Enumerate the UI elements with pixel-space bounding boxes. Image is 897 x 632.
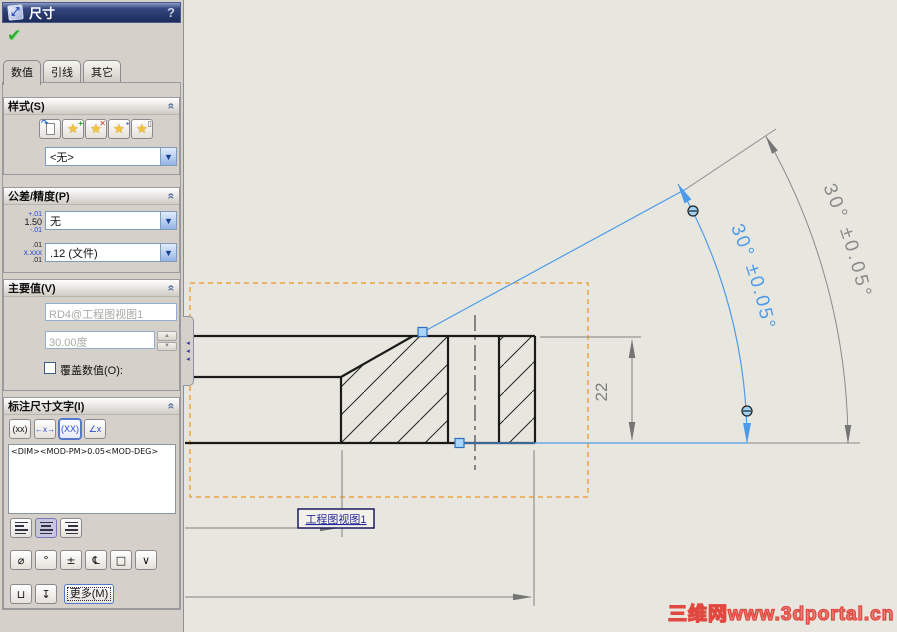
depth-symbol-button[interactable]: ↧ bbox=[35, 584, 57, 604]
tolerance-header-label: 公差/精度(P) bbox=[8, 188, 70, 204]
tab-content: 样式(S) « ↷ ★ + ★ ✕ ★ ▪ bbox=[2, 82, 181, 610]
collapse-triangle-icon: ◂ bbox=[186, 341, 190, 346]
arrow-grip-handle-bottom[interactable] bbox=[742, 406, 752, 416]
override-value-checkbox[interactable] bbox=[44, 362, 56, 374]
square-symbol-button[interactable]: □ bbox=[110, 550, 132, 570]
add-style-button[interactable]: ★ + bbox=[62, 119, 84, 139]
apply-default-style-button[interactable]: ↷ bbox=[39, 119, 61, 139]
plus-icon: + bbox=[78, 119, 83, 128]
collapse-chevron-icon[interactable]: « bbox=[165, 403, 179, 410]
angle-text-button[interactable]: ∠x bbox=[84, 419, 106, 439]
align-left-button[interactable] bbox=[10, 518, 32, 538]
primary-value-section: 主要值(V) « RD4@工程图视图1 30.00度 ▲ ▼ 覆盖数值(O): bbox=[3, 279, 180, 391]
load-style-button[interactable]: ★ ▯ bbox=[131, 119, 153, 139]
drag-handle-square-bottom[interactable] bbox=[455, 439, 464, 448]
more-button[interactable]: 更多(M) bbox=[64, 584, 114, 604]
drag-handle-square-top[interactable] bbox=[418, 328, 427, 337]
dimension-text-section: 标注尺寸文字(I) « (xx) ←x→ (XX) ∠x <DIM><MOD-P… bbox=[3, 397, 180, 609]
tolerance-type-icon: +.01 1.50 -.01 bbox=[6, 211, 42, 234]
collapse-chevron-icon[interactable]: « bbox=[165, 193, 179, 200]
center-text-button[interactable]: ←x→ bbox=[34, 419, 56, 439]
angled-extension-blue[interactable] bbox=[423, 189, 686, 332]
tab-value[interactable]: 数值 bbox=[3, 60, 41, 85]
add-parenthesis-button[interactable]: (xx) bbox=[9, 419, 31, 439]
angular-dim-gray[interactable]: 30° ±0.05° bbox=[686, 129, 876, 443]
precision-icon: .01 x.xxx .01 bbox=[6, 242, 42, 264]
section-hatch-left bbox=[341, 336, 448, 443]
precision-value: .12 (文件) bbox=[50, 245, 98, 261]
angled-extension-gray bbox=[686, 129, 776, 189]
arrow-grip-handle-top[interactable] bbox=[688, 206, 698, 216]
angle-text-blue[interactable]: 30° ±0.05° bbox=[726, 221, 779, 332]
spinner-down-button[interactable]: ▼ bbox=[157, 342, 177, 352]
star-icon: ★ bbox=[136, 121, 148, 137]
counterbore-symbol-button[interactable]: ⊔ bbox=[10, 584, 32, 604]
plus-minus-symbol-button[interactable]: ± bbox=[60, 550, 82, 570]
override-value-label: 覆盖数值(O): bbox=[60, 362, 123, 378]
view-label[interactable]: 工程图视图1 bbox=[298, 509, 374, 528]
star-icon: ★ bbox=[113, 121, 125, 137]
delete-style-button[interactable]: ★ ✕ bbox=[85, 119, 107, 139]
tolerance-section-header[interactable]: 公差/精度(P) « bbox=[4, 188, 179, 205]
align-center-button[interactable] bbox=[35, 518, 57, 538]
style-section: 样式(S) « ↷ ★ + ★ ✕ ★ ▪ bbox=[3, 97, 180, 175]
dropdown-arrow-icon[interactable]: ▼ bbox=[160, 148, 176, 165]
align-right-button[interactable] bbox=[60, 518, 82, 538]
dimension-22[interactable] bbox=[540, 337, 641, 440]
dimension-icon: ⤢ bbox=[7, 4, 23, 20]
precision-dropdown[interactable]: .12 (文件) ▼ bbox=[45, 243, 177, 262]
panel-title: 尺寸 bbox=[29, 3, 55, 22]
primary-section-header[interactable]: 主要值(V) « bbox=[4, 280, 179, 297]
dim22-text[interactable]: 22 bbox=[592, 383, 611, 402]
dimension-value-field[interactable]: 30.00度 bbox=[45, 331, 155, 349]
collapse-triangle-icon: ◂ bbox=[186, 357, 190, 362]
dropdown-arrow-icon[interactable]: ▼ bbox=[160, 212, 176, 229]
dimtext-header-label: 标注尺寸文字(I) bbox=[8, 398, 84, 414]
angular-dim-selected[interactable]: 30° ±0.05° bbox=[418, 184, 779, 448]
value-spinner: ▲ ▼ bbox=[157, 331, 177, 351]
diameter-symbol-button[interactable]: ⌀ bbox=[10, 550, 32, 570]
degree-symbol-button[interactable]: ° bbox=[35, 550, 57, 570]
style-dropdown-value: <无> bbox=[50, 149, 74, 165]
ok-button[interactable]: ✔ bbox=[7, 26, 21, 46]
angle-arc-blue[interactable] bbox=[678, 184, 747, 443]
star-icon: ★ bbox=[67, 121, 79, 137]
dimtext-section-header[interactable]: 标注尺寸文字(I) « bbox=[4, 398, 179, 415]
tolerance-type-value: 无 bbox=[50, 213, 61, 229]
x-icon: ✕ bbox=[99, 119, 106, 128]
spinner-up-button[interactable]: ▲ bbox=[157, 331, 177, 341]
align-left-icon bbox=[15, 522, 28, 534]
dimension-text-input[interactable]: <DIM><MOD-PM>0.05<MOD-DEG> bbox=[8, 444, 176, 514]
collapse-chevron-icon[interactable]: « bbox=[165, 103, 179, 110]
style-header-label: 样式(S) bbox=[8, 98, 45, 114]
align-right-icon bbox=[65, 522, 78, 534]
style-dropdown[interactable]: <无> ▼ bbox=[45, 147, 177, 166]
chevron-down-button[interactable]: ∨ bbox=[135, 550, 157, 570]
style-section-header[interactable]: 样式(S) « bbox=[4, 98, 179, 115]
part-geometry bbox=[185, 336, 535, 443]
tolerance-section: 公差/精度(P) « +.01 1.50 -.01 无 ▼ .01 x.xxx … bbox=[3, 187, 180, 273]
panel-titlebar: ⤢ 尺寸 ? bbox=[2, 2, 181, 23]
collapse-triangle-icon: ◂ bbox=[186, 349, 190, 354]
property-manager-panel: ⤢ 尺寸 ? ✔ 数值 引线 其它 样式(S) « ↷ ★ + bbox=[0, 0, 184, 632]
dimension-name-field[interactable]: RD4@工程图视图1 bbox=[45, 303, 177, 321]
save-icon: ▪ bbox=[126, 119, 129, 128]
offset-text-button[interactable]: (XX) bbox=[59, 419, 81, 439]
panel-splitter-handle[interactable]: ◂ ◂ ◂ bbox=[183, 316, 194, 386]
document-badge-icon: ▯ bbox=[148, 119, 152, 128]
primary-header-label: 主要值(V) bbox=[8, 280, 56, 296]
view-label-text: 工程图视图1 bbox=[305, 512, 366, 526]
save-style-button[interactable]: ★ ▪ bbox=[108, 119, 130, 139]
align-center-icon bbox=[40, 522, 53, 534]
tolerance-type-dropdown[interactable]: 无 ▼ bbox=[45, 211, 177, 230]
collapse-chevron-icon[interactable]: « bbox=[165, 285, 179, 292]
arrow-icon: ↷ bbox=[41, 118, 49, 129]
help-button[interactable]: ? bbox=[167, 5, 175, 20]
section-hatch-right bbox=[499, 336, 535, 443]
dropdown-arrow-icon[interactable]: ▼ bbox=[160, 244, 176, 261]
centerline-symbol-button[interactable]: ℄ bbox=[85, 550, 107, 570]
watermark-text: 三维网www.3dportal.cn bbox=[668, 599, 894, 626]
